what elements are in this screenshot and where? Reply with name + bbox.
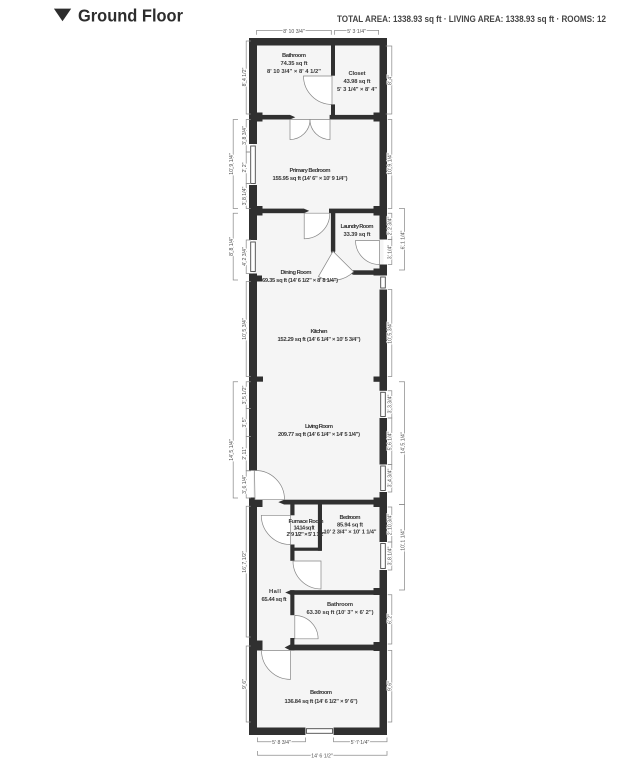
svg-text:8' 4": 8' 4" [388,75,394,85]
svg-text:3' 8 3/4": 3' 8 3/4" [242,126,248,145]
svg-text:155.95 sq ft (14' 6" × 10' 9 1: 155.95 sq ft (14' 6" × 10' 9 1/4") [273,176,348,182]
svg-text:33.39 sq ft: 33.39 sq ft [344,232,371,238]
svg-text:3' 1/4": 3' 1/4" [388,245,394,260]
svg-text:10' 5 3/4": 10' 5 3/4" [388,322,394,344]
svg-text:74.35 sq ft: 74.35 sq ft [281,61,308,67]
svg-text:2' 9 1/2" × 5' 1 1/2": 2' 9 1/2" × 5' 1 1/2" [287,532,326,538]
svg-text:5' 8 3/4": 5' 8 3/4" [272,740,291,746]
svg-text:Bedroom: Bedroom [340,515,361,521]
svg-text:TOTAL AREA: 1338.93 sq ft · LI: TOTAL AREA: 1338.93 sq ft · LIVING AREA:… [337,14,606,24]
svg-text:152.29 sq ft (14' 6 1/4" × 10': 152.29 sq ft (14' 6 1/4" × 10' 5 3/4") [278,337,361,343]
svg-text:10' 9 1/4": 10' 9 1/4" [388,153,394,175]
svg-text:69.35 sq ft (14' 6 1/2" × 8' 8: 69.35 sq ft (14' 6 1/2" × 8' 8 1/4") [262,278,338,284]
svg-text:Bathroom: Bathroom [327,602,353,608]
svg-text:8' 4 1/2": 8' 4 1/2" [242,67,248,86]
svg-text:14' 5 1/4": 14' 5 1/4" [229,439,235,461]
svg-text:43.98 sq ft: 43.98 sq ft [344,79,371,85]
svg-text:Dining Room: Dining Room [281,270,312,276]
svg-text:5' 3 1/4": 5' 3 1/4" [347,29,366,35]
svg-text:14.14 sq ft: 14.14 sq ft [294,526,315,532]
svg-text:Bedroom: Bedroom [310,690,332,696]
svg-text:2' 10 3/4": 2' 10 3/4" [388,514,394,536]
svg-text:9' 6": 9' 6" [388,681,394,691]
svg-text:63.30 sq ft (10' 3" × 6' 2"): 63.30 sq ft (10' 3" × 6' 2") [307,610,374,616]
svg-text:Bathroom: Bathroom [282,53,306,59]
svg-text:2' 2 3/4": 2' 2 3/4" [388,216,394,235]
svg-text:Primary Bedroom: Primary Bedroom [290,168,331,174]
svg-text:4' 2 3/4": 4' 2 3/4" [242,247,248,266]
svg-text:3' 8 1/4": 3' 8 1/4" [388,546,394,565]
svg-text:2' 11": 2' 11" [242,447,248,460]
svg-text:5' 6 1/4": 5' 6 1/4" [388,431,394,450]
svg-text:Ground Floor: Ground Floor [78,5,183,25]
svg-text:3' 6 1/4": 3' 6 1/4" [242,475,248,494]
svg-text:3' 8 1/4": 3' 8 1/4" [242,186,248,205]
svg-text:10' 5 3/4": 10' 5 3/4" [242,318,248,340]
svg-text:8' 8 1/4": 8' 8 1/4" [229,237,235,256]
svg-text:8' 10 3/4": 8' 10 3/4" [283,29,305,35]
svg-text:209.77 sq ft (14' 6 1/4" × 14': 209.77 sq ft (14' 6 1/4" × 14' 5 1/4") [278,432,360,438]
svg-text:3' 5": 3' 5" [242,417,248,427]
svg-text:2' 2": 2' 2" [242,162,248,172]
svg-text:65.44 sq ft: 65.44 sq ft [262,597,287,603]
svg-text:16' 7 1/2": 16' 7 1/2" [242,551,248,573]
svg-text:5' 3 1/4" × 8' 4": 5' 3 1/4" × 8' 4" [337,87,377,93]
svg-text:6' 1 1/4": 6' 1 1/4" [400,230,406,249]
svg-text:3' 4 3/4": 3' 4 3/4" [388,468,394,487]
svg-text:5' 7 1/4": 5' 7 1/4" [351,740,370,746]
svg-text:3' 3 3/4": 3' 3 3/4" [388,394,394,413]
svg-text:Kitchen: Kitchen [311,329,328,335]
svg-text:10' 9 1/4": 10' 9 1/4" [229,153,235,175]
svg-text:9' 6": 9' 6" [242,679,248,689]
svg-text:85.94 sq ft: 85.94 sq ft [337,523,363,529]
svg-text:10' 1 1/4": 10' 1 1/4" [400,529,406,551]
svg-text:8' 10 3/4" × 8' 4 1/2": 8' 10 3/4" × 8' 4 1/2" [267,69,321,75]
svg-text:136.84 sq ft (14' 6 1/2" × 9': 136.84 sq ft (14' 6 1/2" × 9' 6") [285,699,358,705]
svg-text:Laundry Room: Laundry Room [341,224,374,230]
svg-text:Furnace Room: Furnace Room [289,519,324,525]
svg-text:10' 2 3/4" × 10' 1 1/4": 10' 2 3/4" × 10' 1 1/4" [324,530,377,536]
svg-text:6' 2": 6' 2" [388,614,394,624]
svg-text:Living Room: Living Room [305,424,333,430]
svg-text:14' 6 1/2": 14' 6 1/2" [311,754,333,760]
svg-text:14' 5 1/4": 14' 5 1/4" [400,432,406,454]
svg-text:3' 5 1/2": 3' 5 1/2" [242,385,248,404]
svg-text:Hall: Hall [269,589,281,595]
svg-text:Closet: Closet [349,71,366,77]
